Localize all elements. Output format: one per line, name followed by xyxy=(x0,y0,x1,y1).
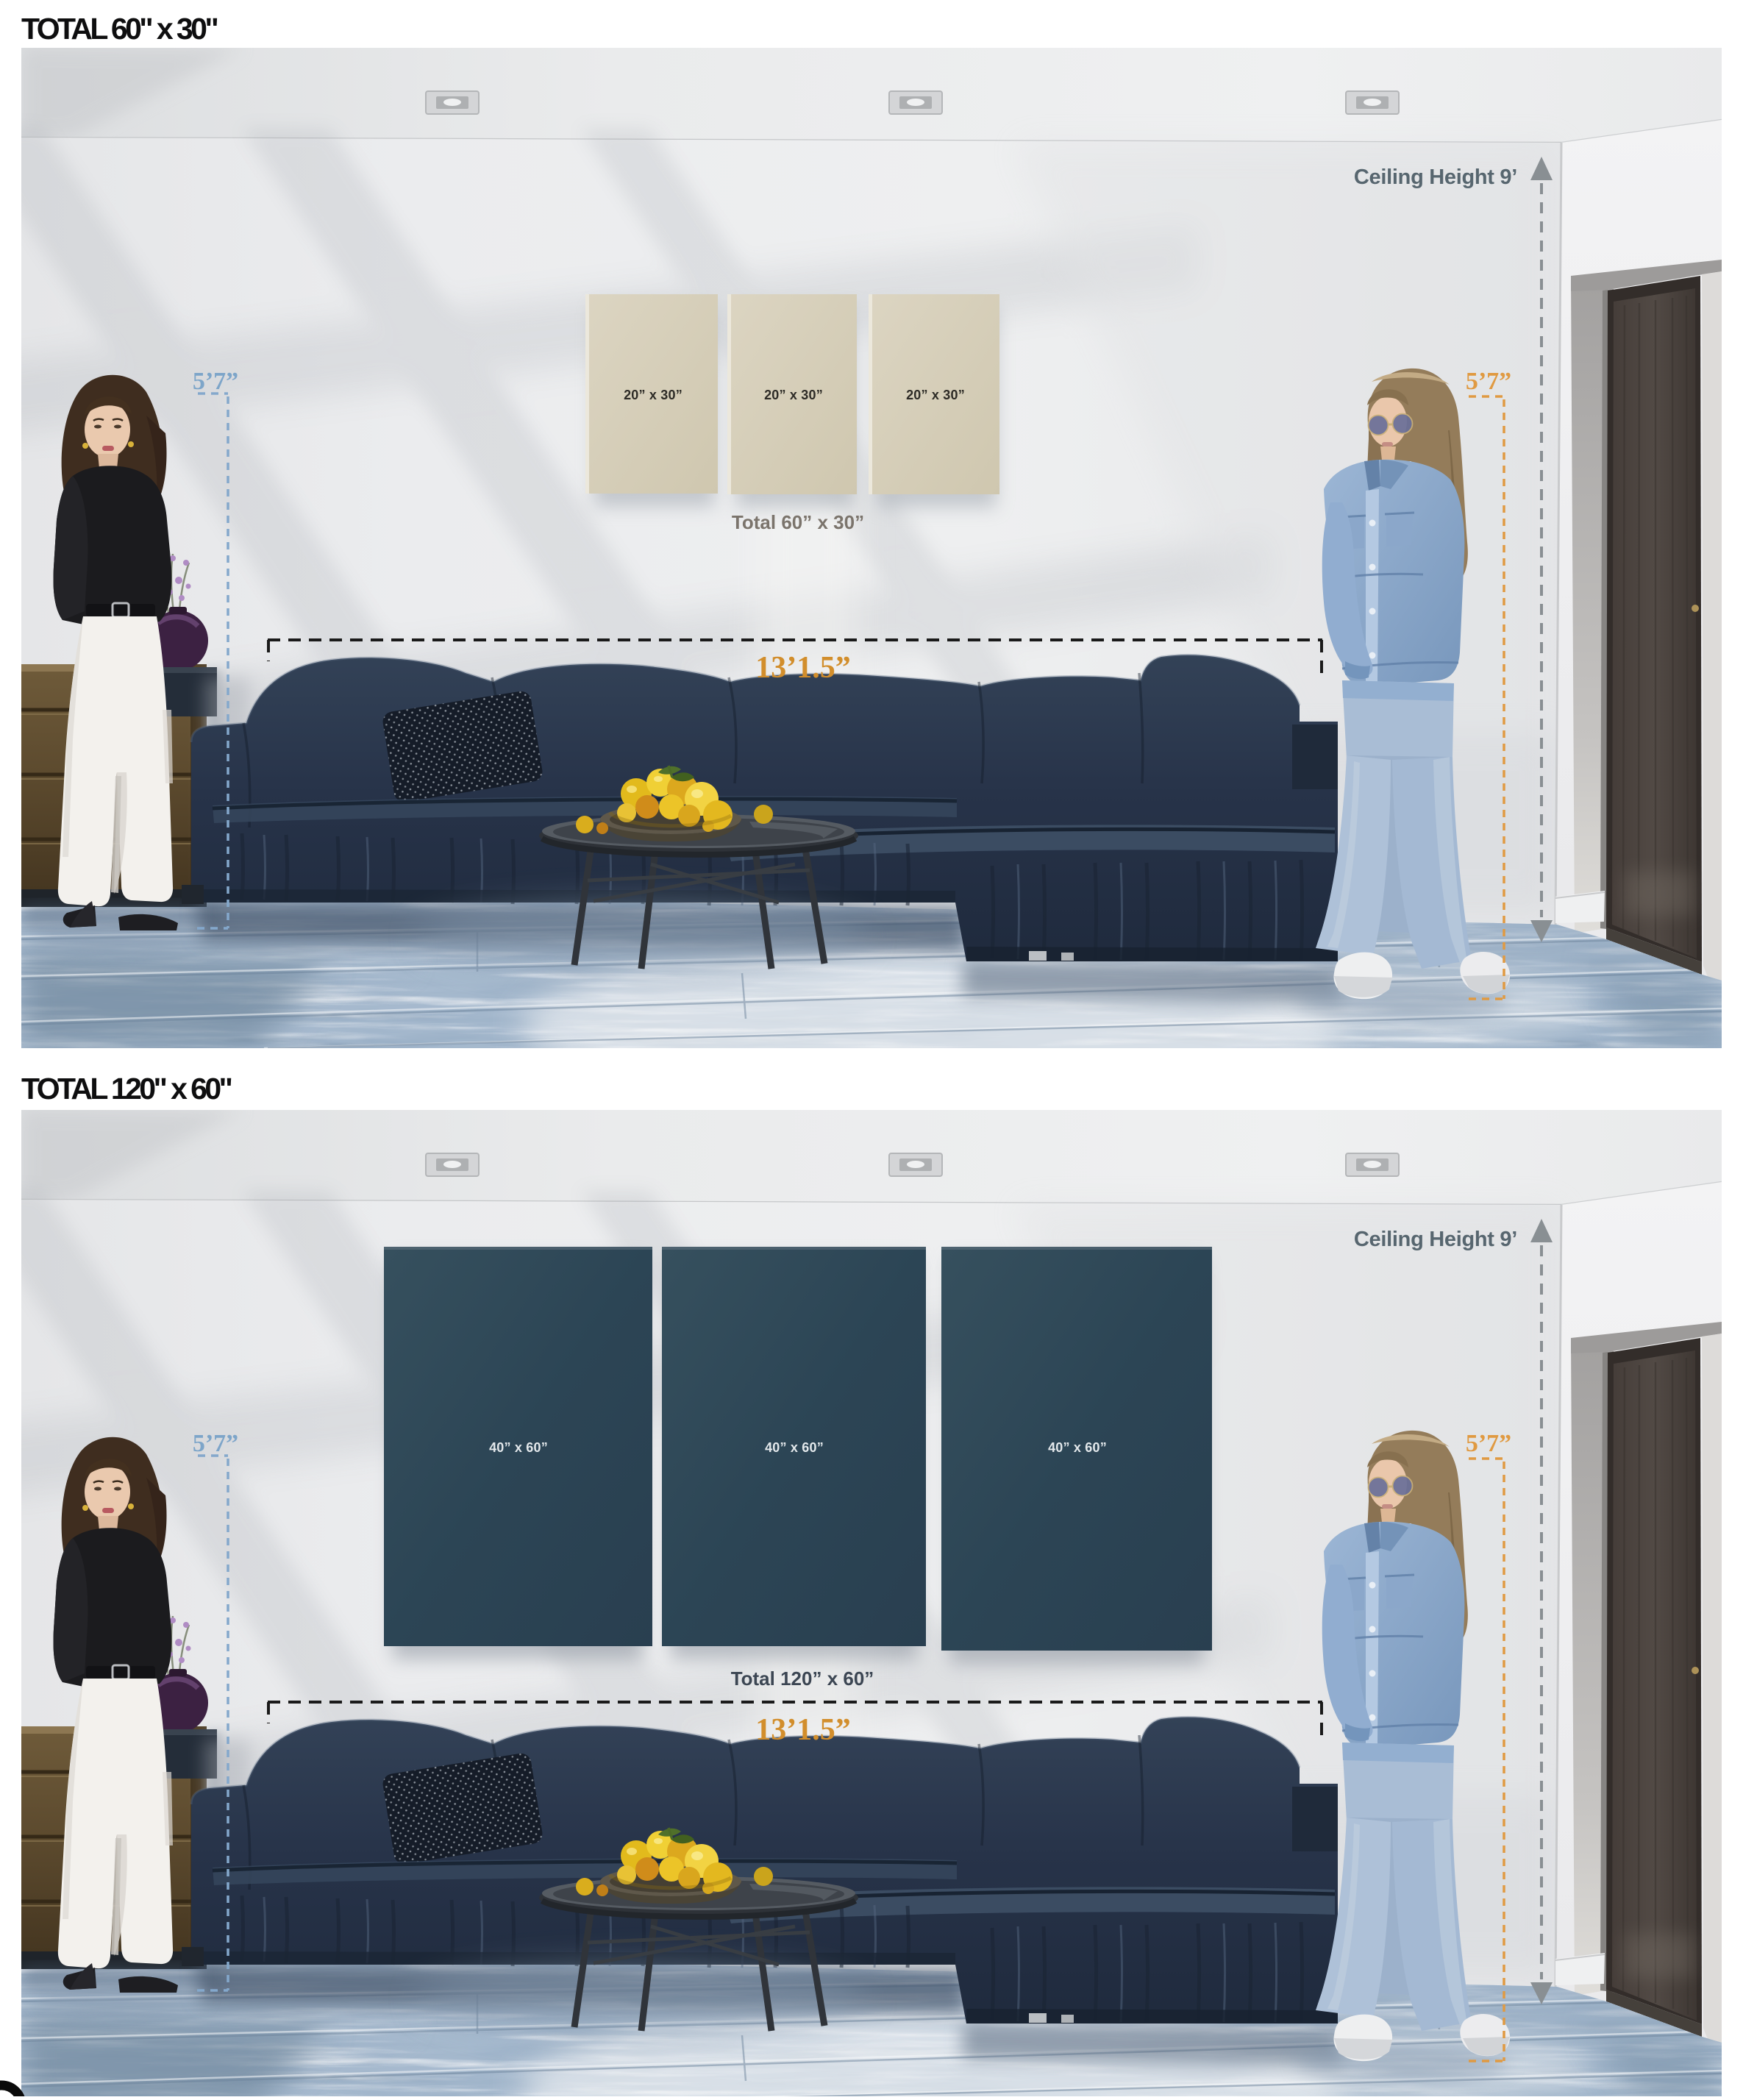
svg-text:Total 120” x 60”: Total 120” x 60” xyxy=(731,1667,874,1690)
svg-text:20” x 30”: 20” x 30” xyxy=(764,388,823,402)
svg-text:20” x 30”: 20” x 30” xyxy=(906,388,965,402)
svg-text:40” x 60”: 40” x 60” xyxy=(489,1440,548,1455)
svg-text:40” x 60”: 40” x 60” xyxy=(765,1440,824,1455)
svg-text:20” x 30”: 20” x 30” xyxy=(624,388,682,402)
svg-text:Total 60” x 30”: Total 60” x 30” xyxy=(732,511,864,533)
svg-text:40” x 60”: 40” x 60” xyxy=(1048,1440,1107,1455)
